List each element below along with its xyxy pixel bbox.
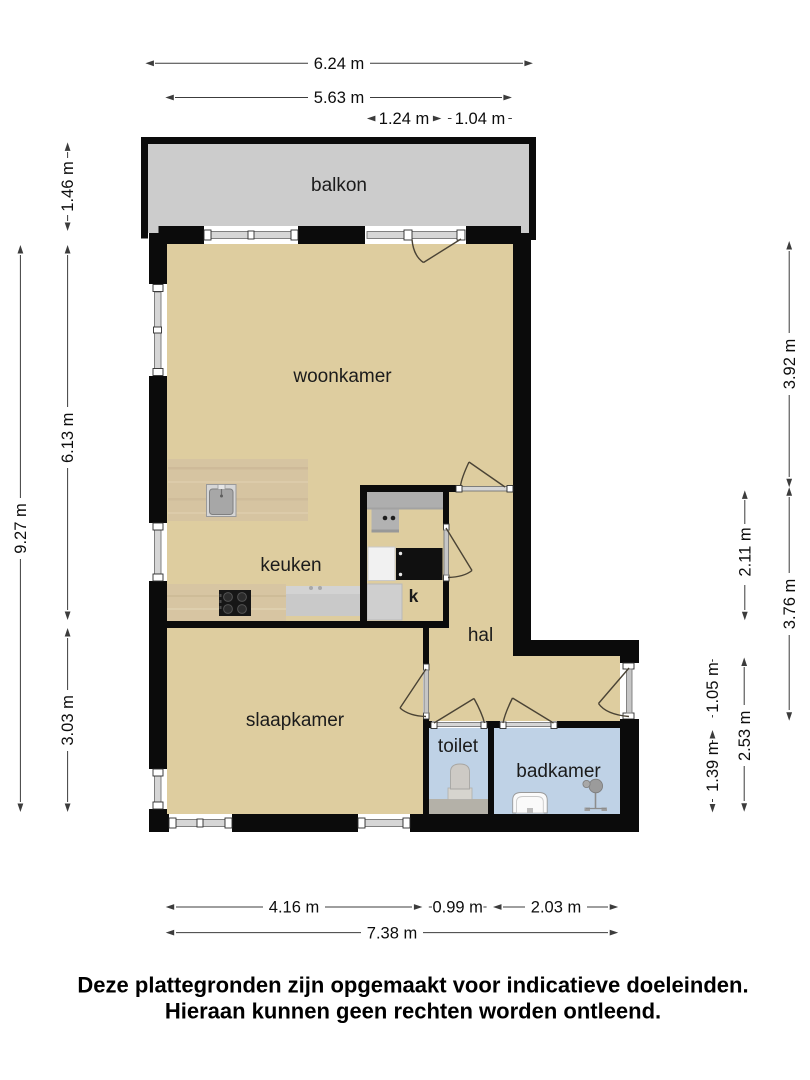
svg-text:k: k (409, 586, 419, 606)
svg-text:1.05 m: 1.05 m (704, 662, 722, 712)
svg-text:1.39 m: 1.39 m (704, 741, 722, 791)
svg-text:3.76 m: 3.76 m (781, 579, 799, 629)
svg-text:1.04 m: 1.04 m (455, 110, 505, 128)
svg-text:slaapkamer: slaapkamer (246, 710, 345, 731)
svg-text:balkon: balkon (311, 175, 367, 196)
svg-text:6.13 m: 6.13 m (59, 413, 77, 463)
svg-text:3.03 m: 3.03 m (59, 695, 77, 745)
svg-text:0.99 m: 0.99 m (432, 899, 482, 917)
svg-text:6.24 m: 6.24 m (314, 55, 364, 73)
svg-text:woonkamer: woonkamer (292, 366, 392, 387)
svg-text:1.24 m: 1.24 m (379, 110, 429, 128)
svg-text:keuken: keuken (260, 555, 321, 576)
svg-text:Hieraan kunnen geen rechten wo: Hieraan kunnen geen rechten worden ontle… (165, 998, 661, 1023)
svg-text:Deze plattegronden zijn opgema: Deze plattegronden zijn opgemaakt voor i… (77, 972, 748, 997)
svg-text:hal: hal (468, 625, 493, 646)
svg-text:2.53 m: 2.53 m (736, 711, 754, 761)
svg-text:1.46 m: 1.46 m (59, 161, 77, 211)
svg-text:3.92 m: 3.92 m (781, 339, 799, 389)
svg-text:badkamer: badkamer (516, 761, 601, 782)
svg-text:5.63 m: 5.63 m (314, 89, 364, 107)
svg-text:2.03 m: 2.03 m (531, 899, 581, 917)
svg-text:2.11 m: 2.11 m (736, 527, 754, 576)
svg-text:7.38 m: 7.38 m (367, 924, 417, 942)
svg-text:4.16 m: 4.16 m (269, 899, 319, 917)
svg-text:9.27 m: 9.27 m (12, 503, 30, 553)
svg-text:toilet: toilet (438, 736, 479, 757)
